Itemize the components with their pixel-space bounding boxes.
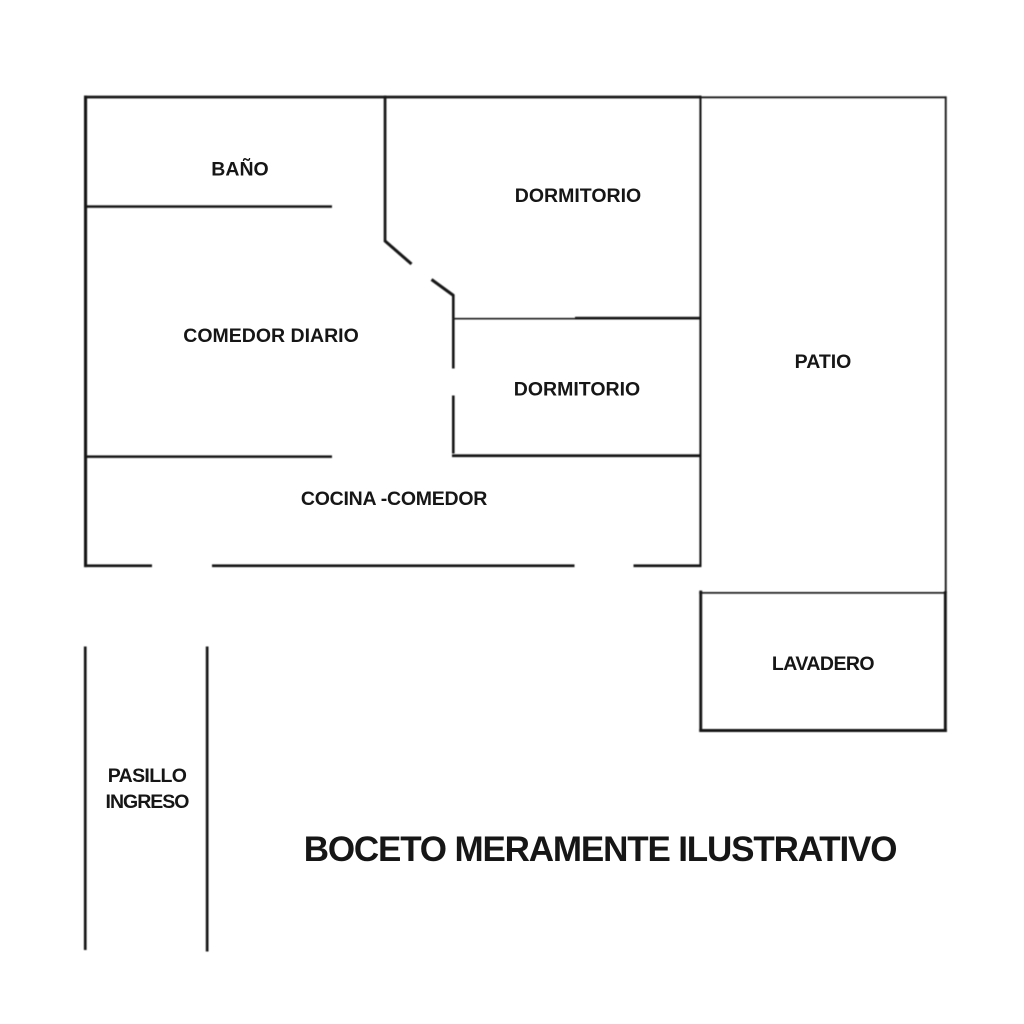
svg-text:BOCETO MERAMENTE ILUSTRATIVO: BOCETO MERAMENTE ILUSTRATIVO	[304, 830, 897, 869]
svg-text:PASILLO: PASILLO	[108, 765, 187, 787]
svg-text:DORMITORIO: DORMITORIO	[514, 379, 640, 401]
svg-text:DORMITORIO: DORMITORIO	[515, 185, 641, 207]
svg-text:LAVADERO: LAVADERO	[772, 653, 875, 675]
svg-text:INGRESO: INGRESO	[106, 791, 190, 813]
svg-text:COCINA -COMEDOR: COCINA -COMEDOR	[301, 488, 487, 510]
svg-text:COMEDOR DIARIO: COMEDOR DIARIO	[183, 325, 359, 347]
svg-text:BAÑO: BAÑO	[211, 158, 268, 181]
svg-text:PATIO: PATIO	[795, 351, 852, 373]
